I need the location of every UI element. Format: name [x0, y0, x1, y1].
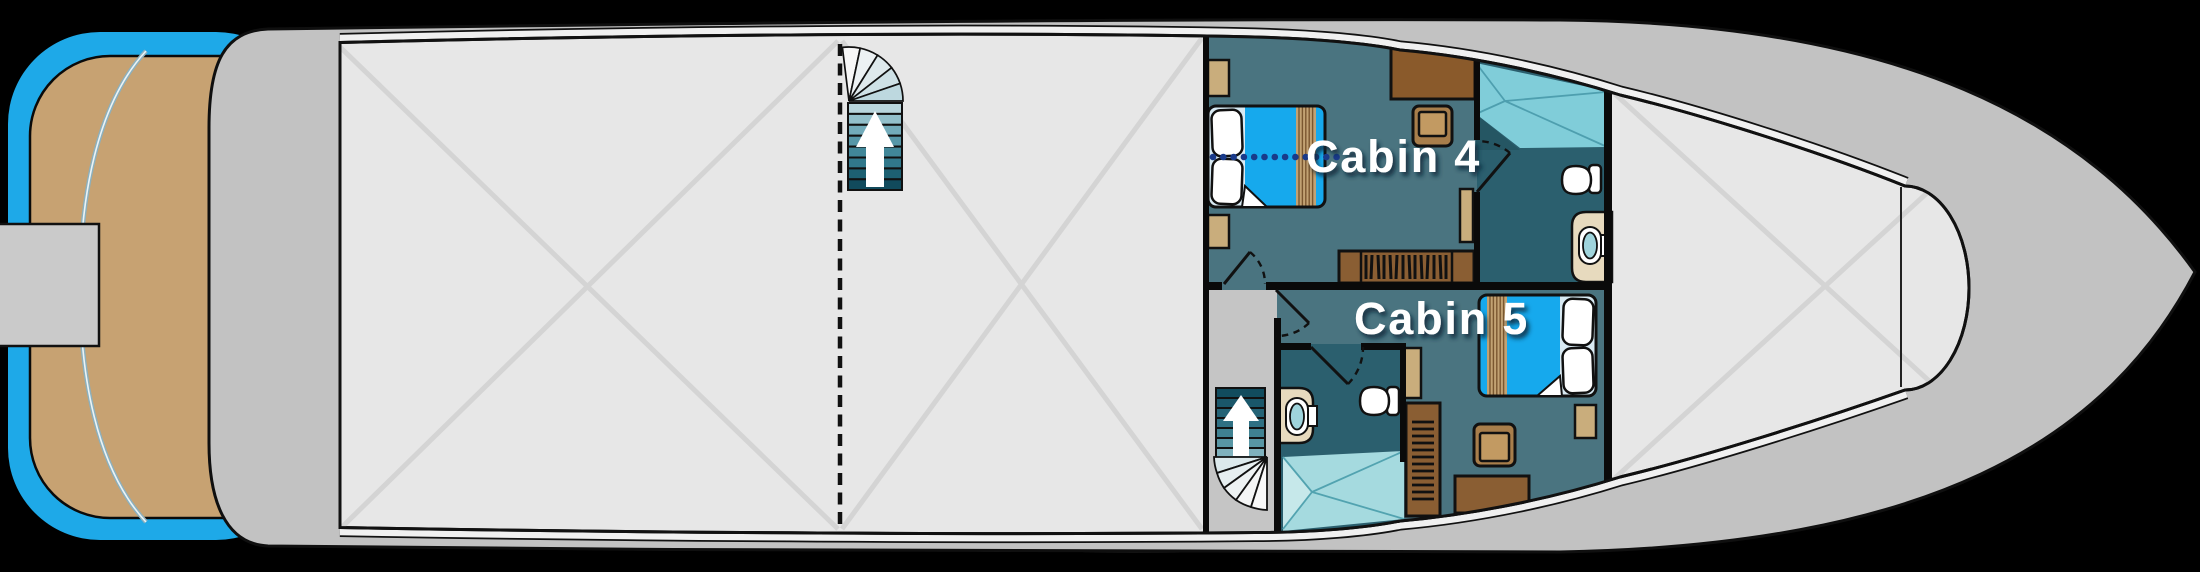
- svg-text:Cabin 4: Cabin 4: [1306, 131, 1481, 182]
- svg-text:Cabin 5: Cabin 5: [1354, 293, 1529, 344]
